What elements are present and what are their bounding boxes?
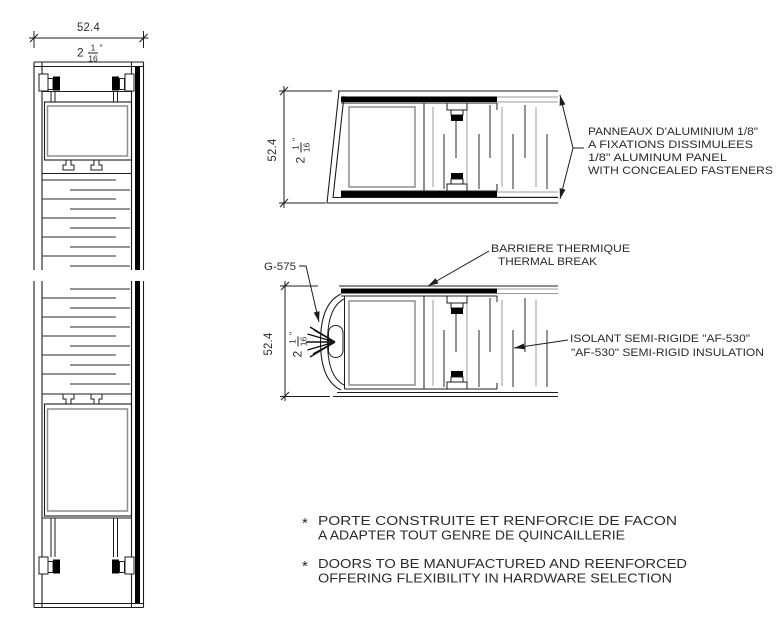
- beveled-edge: [327, 91, 344, 203]
- dim-mm-label: 52.4: [265, 138, 279, 161]
- left-dimension: 52.4 2 1 16 ": [29, 20, 149, 64]
- insulation-hatch-upper: [42, 180, 130, 266]
- fastener-bolt-top-right: [112, 74, 134, 91]
- gasket-label: G-575: [264, 261, 296, 273]
- dim-inch-whole: 2: [77, 46, 84, 60]
- insulation-hatch-gray: [433, 107, 536, 187]
- skin-continuation-bottom: [497, 192, 558, 197]
- left-section-body: [34, 62, 144, 608]
- note-2-line-1: DOORS TO BE MANUFACTURED AND REENFORCED: [318, 556, 687, 571]
- top-right-dimension: 52.4 2 1 16 ": [265, 86, 332, 208]
- thermal-break-callout: BARRIERE THERMIQUE THERMAL BREAK: [428, 243, 630, 286]
- dim-mm-label-rotated: 52.4: [265, 138, 279, 161]
- tube-walls: [341, 103, 497, 191]
- dim-inch-whole: 2: [291, 350, 305, 357]
- dim-mm-label: 52.4: [77, 20, 100, 34]
- aluminum-panel-edge: [135, 281, 140, 603]
- interlock-profile-bottom: [45, 394, 132, 404]
- fastener-bolt-bottom: [447, 371, 467, 389]
- gasket-callout: G-575: [264, 261, 319, 322]
- top-right-section-view: 52.4 2 1 16 ": [265, 86, 773, 208]
- dim-inch-fraction: 2 1 16 ": [77, 43, 103, 64]
- panel-callout-line-4: WITH CONCEALED FASTENERS: [588, 165, 773, 177]
- middle-dimension: 52.4 2 1 16 ": [261, 281, 330, 401]
- bottom-tube-window: [48, 409, 128, 511]
- panel-callout-line-3: 1/8" ALUMINUM PANEL: [588, 152, 727, 164]
- insulation-leader: [514, 340, 568, 348]
- dim-inch-unit: ": [291, 138, 301, 141]
- aluminum-panel-bottom: [341, 192, 497, 198]
- middle-section-body: [306, 286, 558, 397]
- fastener-bolt-bottom: [447, 173, 467, 191]
- dim-mm-label: 52.4: [261, 332, 275, 355]
- top-right-section-body: [327, 91, 558, 203]
- interlock-profile-top: [45, 160, 132, 170]
- fastener-bolt-bottom-left: [39, 557, 60, 574]
- skin-continuation-top: [497, 97, 558, 102]
- notes: * PORTE CONSTRUITE ET RENFORCIE DE FACON…: [302, 513, 687, 586]
- aluminum-panel-top: [341, 97, 497, 103]
- leader-line-upper: [560, 95, 573, 148]
- bottom-tube-outline: [45, 404, 132, 516]
- thermal-callout-line-1: BARRIERE THERMIQUE: [491, 243, 630, 255]
- dim-inch-unit: ": [288, 332, 298, 335]
- insulation-hatch-lower: [42, 289, 130, 384]
- insulation-callout-line-2: "AF-530" SEMI-RIGID INSULATION: [571, 347, 764, 359]
- tube-window: [349, 107, 415, 187]
- leader-line-lower: [560, 148, 573, 199]
- note-1-line-2: A ADAPTER TOUT GENRE DE QUINCAILLERIE: [318, 528, 625, 543]
- tube-window: [349, 301, 415, 385]
- dim-inch-num: 1: [288, 339, 298, 344]
- left-section-view: 52.4 2 1 16 ": [29, 20, 149, 608]
- fastener-bolt-top: [447, 296, 467, 314]
- dim-inch-num: 1: [91, 43, 96, 53]
- tube-walls: [341, 296, 497, 389]
- dim-inch-den: 16: [302, 143, 312, 153]
- note-2-bullet: *: [302, 558, 308, 575]
- panel-callout: PANNEAUX D'ALUMINIUM 1/8" A FIXATIONS DI…: [560, 95, 773, 199]
- dim-inch-fraction-rotated: 2 1 16 ": [288, 332, 309, 358]
- thermal-break-bar: [341, 289, 497, 294]
- note-1-bullet: *: [302, 515, 308, 532]
- top-tube-window: [48, 106, 128, 156]
- insulation-callout: ISOLANT SEMI-RIGIDE "AF-530" "AF-530" SE…: [514, 333, 764, 359]
- dim-inch-unit: ": [100, 43, 103, 53]
- skin-continuation-top: [497, 289, 558, 294]
- drawing-canvas: 52.4 2 1 16 ": [0, 0, 783, 624]
- middle-right-section-view: G-575 52.4 2 1 16 ": [261, 243, 764, 401]
- gasket-leader: [299, 266, 319, 322]
- top-tube-outline: [45, 102, 132, 160]
- aluminum-panel-edge: [135, 66, 140, 270]
- dim-inch-num: 1: [291, 145, 301, 150]
- fastener-bolt-top: [447, 103, 467, 121]
- note-1-line-1: PORTE CONSTRUITE ET RENFORCIE DE FACON: [318, 513, 677, 528]
- panel-callout-line-1: PANNEAUX D'ALUMINIUM 1/8": [588, 126, 758, 138]
- fastener-channels: [51, 92, 118, 558]
- thermal-callout-line-2: THERMAL BREAK: [498, 256, 598, 268]
- insulation-hatch-gray: [433, 300, 536, 386]
- drawing-page: 52.4 2 1 16 ": [0, 0, 783, 624]
- insulation-callout-line-1: ISOLANT SEMI-RIGIDE "AF-530": [570, 333, 750, 345]
- fastener-bolt-bottom-right: [112, 557, 134, 574]
- dim-inch-whole: 2: [294, 156, 308, 163]
- thermal-leader: [428, 251, 489, 286]
- note-2-line-2: OFFERING FLEXIBILITY IN HARDWARE SELECTI…: [318, 571, 672, 586]
- fastener-bolt-top-left: [39, 74, 60, 91]
- panel-callout-line-2: A FIXATIONS DISSIMULEES: [588, 139, 753, 151]
- dim-mm-label-rotated: 52.4: [261, 332, 275, 355]
- dim-inch-fraction-rotated: 2 1 16 ": [291, 138, 312, 164]
